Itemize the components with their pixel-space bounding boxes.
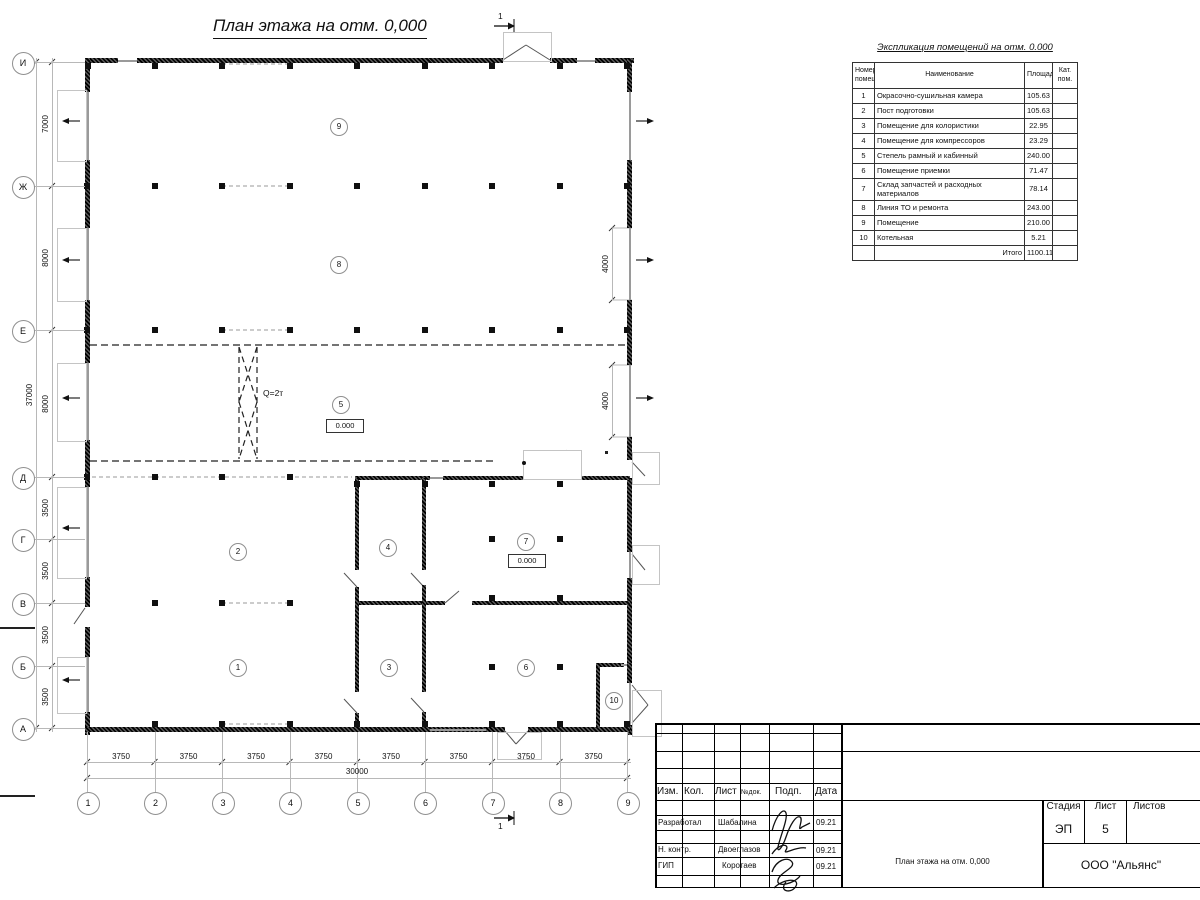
title-block-line	[655, 723, 1200, 725]
wall-opening	[118, 60, 137, 62]
column	[287, 183, 293, 189]
title-block-line	[682, 723, 683, 887]
dimension-label: 8000	[41, 238, 51, 278]
grid-line-row	[33, 62, 85, 63]
grid-line-row	[33, 666, 85, 667]
column	[152, 474, 158, 480]
column	[85, 63, 91, 69]
column	[219, 721, 225, 727]
title-block-line	[841, 723, 843, 887]
title-block-line	[655, 830, 842, 831]
column	[219, 474, 225, 480]
dimension-label: 7000	[41, 104, 51, 144]
column	[287, 721, 293, 727]
column	[287, 600, 293, 606]
wall-segment	[85, 577, 90, 607]
dimension-label: 8000	[41, 384, 51, 424]
wall-segment	[355, 601, 445, 605]
wall-segment	[422, 478, 426, 570]
column	[489, 536, 495, 542]
title-block-line	[655, 887, 1200, 889]
title-block-line	[655, 857, 842, 858]
title-block-line	[655, 733, 842, 734]
column	[152, 327, 158, 333]
wall-segment	[137, 58, 503, 63]
room-number: 5	[332, 396, 350, 414]
grid-bubble-col: 9	[617, 792, 640, 815]
column	[354, 481, 360, 487]
entrance-apron	[632, 545, 660, 585]
title-block-line	[842, 751, 1200, 752]
wall-segment	[85, 160, 90, 228]
column	[152, 721, 158, 727]
column	[557, 595, 563, 601]
grid-bubble-col: 5	[347, 792, 370, 815]
title-block-line	[655, 768, 842, 769]
column	[219, 327, 225, 333]
room-number: 6	[517, 659, 535, 677]
column	[489, 664, 495, 670]
wall-segment	[355, 587, 359, 692]
grid-bubble-col: 8	[549, 792, 572, 815]
wall-segment	[355, 476, 430, 480]
title-block-line	[740, 723, 741, 887]
column	[557, 481, 563, 487]
column	[287, 474, 293, 480]
wall-opening	[629, 92, 631, 160]
grid-bubble-col: 3	[212, 792, 235, 815]
title-block-line	[655, 723, 657, 888]
column	[422, 183, 428, 189]
dimension-label: 3500	[41, 551, 51, 591]
grid-bubble-col: 4	[279, 792, 302, 815]
grid-bubble-row: В	[12, 593, 35, 616]
point-marker	[605, 451, 608, 454]
grid-bubble-row: А	[12, 718, 35, 741]
fold-mark	[0, 627, 35, 629]
wall-segment	[627, 160, 632, 228]
column	[557, 63, 563, 69]
room-number: 4	[379, 539, 397, 557]
title-block-line	[769, 723, 770, 887]
room-number: 9	[330, 118, 348, 136]
column	[152, 183, 158, 189]
column	[557, 327, 563, 333]
column	[287, 63, 293, 69]
room-number: 2	[229, 543, 247, 561]
dimension-label: 3750	[294, 752, 354, 762]
dim-line	[85, 762, 631, 763]
entrance-apron	[57, 228, 87, 302]
title-block-line	[714, 723, 715, 887]
dimension-label: 3750	[91, 752, 151, 762]
column	[354, 327, 360, 333]
grid-bubble-col: 7	[482, 792, 505, 815]
column	[489, 595, 495, 601]
title-block-line	[1084, 800, 1085, 843]
dimension-label: 3750	[564, 752, 624, 762]
grid-line-row	[33, 330, 85, 331]
grid-line-row	[33, 539, 85, 540]
wall-segment	[627, 663, 632, 683]
column	[489, 327, 495, 333]
column	[489, 183, 495, 189]
wall-segment	[627, 578, 632, 663]
wall-opening	[621, 664, 627, 666]
column	[219, 183, 225, 189]
title-block-line	[1042, 800, 1044, 887]
wall-segment	[596, 663, 624, 667]
entrance-apron	[57, 487, 87, 579]
dimension-label: 3750	[429, 752, 489, 762]
grid-bubble-col: 6	[414, 792, 437, 815]
wall-segment	[550, 58, 577, 63]
wall-opening	[577, 60, 595, 62]
title-block-line	[813, 723, 814, 887]
column	[152, 600, 158, 606]
column	[152, 63, 158, 69]
column	[489, 481, 495, 487]
entrance-apron	[632, 452, 660, 485]
column	[624, 183, 630, 189]
entrance-apron	[57, 90, 87, 162]
title-block-line	[655, 800, 842, 801]
column	[422, 63, 428, 69]
column	[287, 327, 293, 333]
wall-segment	[528, 727, 630, 732]
entrance-apron	[57, 363, 87, 442]
dim-line	[612, 228, 613, 300]
dim-line	[36, 58, 37, 732]
dimension-label: 3750	[496, 752, 556, 762]
plan-linework	[0, 0, 1200, 900]
grid-line-row	[33, 728, 85, 729]
dim-line	[52, 58, 53, 732]
wall-opening	[87, 228, 89, 300]
grid-bubble-row: Ж	[12, 176, 35, 199]
stair-node	[522, 461, 526, 465]
title-block-line	[1126, 800, 1127, 843]
wall-segment	[85, 627, 90, 657]
title-block-line	[655, 751, 842, 752]
wall-segment	[472, 601, 630, 605]
dimension-label: 3750	[361, 752, 421, 762]
dimension-total-label: 37000	[25, 375, 35, 415]
column	[557, 183, 563, 189]
title-block-line	[655, 783, 842, 784]
grid-line-row	[33, 477, 85, 478]
column	[354, 63, 360, 69]
column	[219, 600, 225, 606]
room-number: 8	[330, 256, 348, 274]
title-block-line	[842, 800, 1200, 801]
column	[354, 183, 360, 189]
fold-mark	[0, 795, 35, 797]
wall-opening	[430, 729, 486, 732]
wall-opening	[629, 228, 631, 300]
wall-opening	[87, 363, 89, 440]
wall-segment	[627, 478, 632, 552]
grid-bubble-col: 2	[144, 792, 167, 815]
entrance-apron	[632, 690, 662, 737]
wall-opening	[430, 477, 443, 479]
column	[557, 536, 563, 542]
title-block-line	[1042, 843, 1200, 844]
title-block-line	[655, 843, 842, 844]
column	[422, 721, 428, 727]
column	[624, 327, 630, 333]
room-number: 3	[380, 659, 398, 677]
gate-width-label: 4000	[601, 244, 611, 284]
column	[489, 63, 495, 69]
grid-bubble-col: 1	[77, 792, 100, 815]
column	[219, 63, 225, 69]
wall-segment	[355, 478, 359, 570]
dimension-label: 3750	[159, 752, 219, 762]
grid-bubble-row: И	[12, 52, 35, 75]
entrance-apron	[503, 32, 552, 62]
room-number: 7	[517, 533, 535, 551]
wall-segment	[422, 585, 426, 692]
room-number: 1	[229, 659, 247, 677]
wall-opening	[629, 365, 631, 437]
grid-bubble-row: Д	[12, 467, 35, 490]
stair	[523, 450, 582, 480]
gate-width-label: 4000	[601, 381, 611, 421]
grid-line-row	[33, 186, 85, 187]
grid-bubble-row: Е	[12, 320, 35, 343]
column	[489, 721, 495, 727]
dimension-total-label: 30000	[327, 767, 387, 777]
wall-opening	[87, 92, 89, 160]
grid-bubble-row: Б	[12, 656, 35, 679]
column	[624, 721, 630, 727]
dimension-label: 3500	[41, 615, 51, 655]
wall-opening	[629, 552, 631, 578]
wall-opening	[629, 683, 631, 725]
column	[422, 327, 428, 333]
room-number: 10	[605, 692, 623, 710]
column	[557, 721, 563, 727]
column	[557, 664, 563, 670]
column	[354, 721, 360, 727]
dim-line	[612, 365, 613, 437]
wall-opening	[87, 657, 89, 712]
dim-line	[85, 778, 631, 779]
column	[422, 481, 428, 487]
dimension-label: 3500	[41, 488, 51, 528]
column	[624, 63, 630, 69]
title-block-line	[655, 815, 842, 816]
wall-opening	[87, 487, 89, 577]
wall-segment	[596, 663, 600, 727]
grid-bubble-row: Г	[12, 529, 35, 552]
dimension-label: 3750	[226, 752, 286, 762]
grid-line-row	[33, 603, 85, 604]
title-block-line	[655, 875, 842, 876]
dimension-label: 3500	[41, 677, 51, 717]
